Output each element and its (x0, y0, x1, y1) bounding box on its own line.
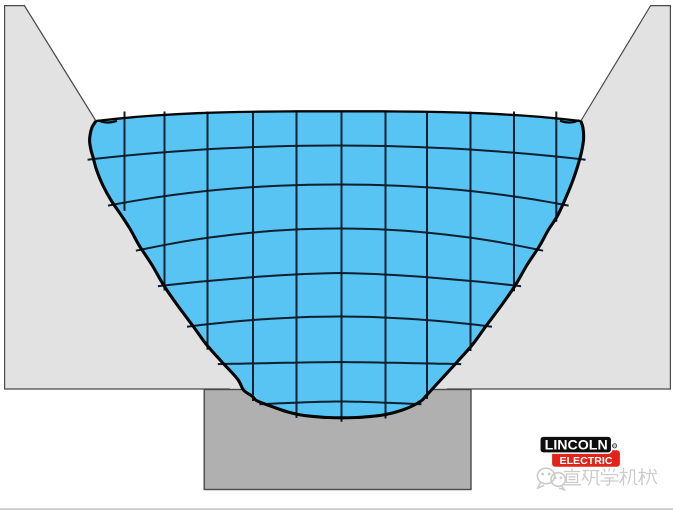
svg-text:ELECTRIC: ELECTRIC (560, 456, 613, 467)
svg-text:LINCOLN: LINCOLN (545, 438, 608, 453)
svg-text:R: R (613, 445, 616, 449)
